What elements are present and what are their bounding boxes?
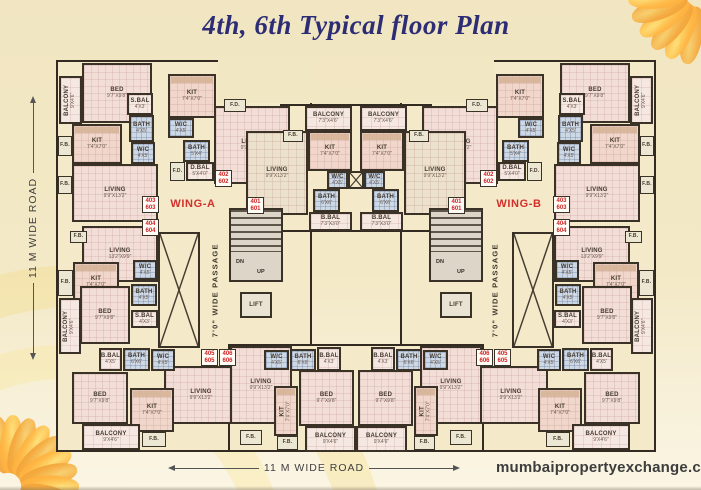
dry-balcony: D.BAL5'X4'0" — [186, 162, 214, 181]
passage-label: 7'0" WIDE PASSAGE — [203, 232, 229, 348]
living-room: LIVING9'9"X13'2" — [474, 366, 548, 424]
bath-room: BATH6'X6' — [290, 349, 316, 371]
wc: W/C4'X5' — [557, 142, 581, 164]
service-balcony: S.BAL4'X3' — [131, 310, 158, 328]
bed-room: BED9'7"X9'8" — [584, 372, 640, 424]
wc: W/C4'X5' — [151, 349, 175, 371]
bath-room: BATH4'X5' — [555, 284, 581, 306]
service-balcony: S.BAL4'X3' — [127, 93, 153, 115]
kitchen: KIT7'4"X7'0" — [360, 131, 404, 171]
kitchen: KIT7'4"X7'0" — [168, 74, 216, 118]
living-room: LIVING9'9"X13'2" — [164, 366, 238, 424]
staircase: DNUP — [229, 208, 283, 282]
flower-bed: F.B. — [283, 130, 303, 142]
back-balcony: B.BAL7'3"X3'0" — [309, 212, 352, 231]
bed-room: BED9'7"X9'8" — [72, 372, 128, 424]
flower-bed: F.B. — [414, 436, 435, 450]
wc: W/C4'X5' — [131, 142, 155, 164]
bed-room: BED9'7"X9'8" — [80, 286, 130, 344]
wc: W/C4'X5' — [364, 171, 385, 189]
page-title: 4th, 6th Typical floor Plan — [202, 10, 509, 41]
floor-plan: BED9'7"X9'8"BED9'7"X9'8"BALCONY9'X4'6"BA… — [0, 0, 701, 490]
service-balcony: S.BAL4'X3' — [559, 93, 585, 115]
road-left-text: 11 M WIDE ROAD — [27, 173, 39, 283]
bath-room: BATH4'X5' — [129, 115, 154, 142]
scan-edge-shadow — [0, 486, 701, 490]
bath-room: BATH4'X5' — [131, 284, 157, 306]
unit-plate: 404604 — [553, 219, 570, 236]
wing-label: WING-A — [160, 197, 226, 212]
bath-room: BATH6'X6' — [123, 348, 150, 371]
back-balcony: B.BAL4'X3' — [317, 347, 341, 371]
service-balcony: S.BAL4'X3' — [554, 310, 581, 328]
scanned-floor-plan: { "title": "4th, 6th Typical floor Plan"… — [0, 0, 701, 490]
wing-label: WING-B — [486, 197, 552, 212]
kitchen: KIT7'4"X7'0" — [414, 386, 438, 436]
arrow-left-icon — [168, 465, 175, 471]
flower-bed: F.B. — [58, 270, 73, 296]
unit-plate: 406606 — [219, 349, 236, 366]
balcony: BALCONY9'X4'6" — [82, 424, 140, 450]
unit-plate: 405605 — [494, 349, 511, 366]
flower-bed: F.B. — [546, 432, 570, 447]
flower-bed: F.D. — [170, 162, 185, 181]
kitchen: KIT7'4"X7'0" — [590, 124, 640, 164]
balcony: BALCONY9'X4'6" — [59, 298, 81, 354]
passage-label: 7'0" WIDE PASSAGE — [483, 232, 509, 348]
flower-bed: F.D. — [527, 162, 542, 181]
kitchen: KIT7'4"X7'0" — [72, 124, 122, 164]
arrow-right-icon — [30, 96, 36, 103]
rooms-layer: BED9'7"X9'8"BED9'7"X9'8"BALCONY9'X4'6"BA… — [0, 0, 701, 490]
balcony: BALCONY9'X4'6" — [572, 424, 630, 450]
unit-plate: 402602 — [480, 170, 497, 187]
balcony: BALCONY9'X4'6" — [59, 76, 82, 124]
balcony: BALCONY9'X4'6" — [356, 426, 407, 452]
flower-bed: F.B. — [240, 430, 262, 445]
road-bottom-text: 11 M WIDE ROAD — [259, 462, 369, 474]
road-label-left: 11 M WIDE ROAD — [26, 96, 40, 360]
kitchen: KIT7'4"X7'0" — [274, 386, 298, 436]
kitchen: KIT7'4"X7'0" — [496, 74, 544, 118]
wc: W/C4'X5' — [537, 349, 561, 371]
back-balcony: B.BAL4'X5' — [99, 348, 122, 371]
balcony: BALCONY9'X4'6" — [631, 298, 653, 354]
watermark: mumbaipropertyexchange.com — [496, 459, 701, 476]
wc: W/C4'X5' — [423, 350, 448, 370]
unit-plate: 402602 — [215, 170, 232, 187]
open-shaft — [512, 232, 554, 348]
unit-plate: 401601 — [247, 197, 264, 214]
flower-bed: F.D. — [224, 99, 246, 112]
arrow-left-icon — [30, 353, 36, 360]
bath-room: BATH6'X6' — [396, 349, 422, 371]
dry-balcony: D.BAL5'X4'0" — [498, 162, 526, 181]
wc: W/C4'X5' — [327, 171, 348, 189]
flower-bed: F.B. — [70, 231, 87, 243]
arrow-right-icon — [453, 465, 460, 471]
bath-room: BATH5'X4' — [502, 140, 529, 162]
unit-plate: 403603 — [553, 196, 570, 213]
balcony: BALCONY7'3"X4'6" — [305, 106, 352, 131]
flower-bed: F.B. — [639, 270, 654, 296]
flower-bed: F.B. — [409, 130, 429, 142]
duct-shaft — [348, 171, 364, 189]
wc: W/C4'X5' — [555, 260, 579, 280]
bath-room: BATH4'X5' — [558, 115, 583, 142]
living-room: LIVING9'9"X13'2" — [554, 164, 640, 222]
flower-bed: F.B. — [58, 136, 72, 156]
flower-bed: F.B. — [277, 436, 298, 450]
bath-room: BATH6'X6' — [372, 189, 399, 212]
kitchen: KIT7'4"X7'0" — [308, 131, 352, 171]
flower-bed: F.B. — [58, 176, 72, 194]
road-label-bottom: 11 M WIDE ROAD — [168, 461, 460, 475]
bath-room: BATH6'X6' — [313, 189, 340, 212]
flower-bed: F.B. — [640, 176, 654, 194]
back-balcony: B.BAL4'X3' — [371, 347, 395, 371]
wc: W/C4'X5' — [518, 118, 544, 138]
flower-bed: F.B. — [625, 231, 642, 243]
unit-plate: 404604 — [142, 219, 159, 236]
balcony: BALCONY9'X4'6" — [305, 426, 356, 452]
bath-room: BATH5'X4' — [183, 140, 210, 162]
flower-bed: F.B. — [142, 432, 166, 447]
flower-bed: F.D. — [466, 99, 488, 112]
unit-plate: 403603 — [142, 196, 159, 213]
unit-plate: 406606 — [476, 349, 493, 366]
staircase: DNUP — [429, 208, 483, 282]
back-balcony: B.BAL4'X5' — [590, 348, 613, 371]
bed-room: BED9'7"X9'8" — [358, 370, 413, 426]
wc: W/C4'X5' — [168, 118, 194, 138]
bed-room: BED9'7"X9'8" — [582, 286, 632, 344]
bed-room: BED9'7"X9'8" — [299, 370, 354, 426]
bath-room: BATH6'X6' — [562, 348, 589, 371]
lift: LIFT — [440, 292, 472, 318]
lift: LIFT — [240, 292, 272, 318]
balcony: BALCONY7'3"X4'6" — [360, 106, 407, 131]
flower-bed: F.B. — [450, 430, 472, 445]
unit-plate: 405605 — [201, 349, 218, 366]
wc: W/C4'X5' — [133, 260, 157, 280]
wc: W/C4'X5' — [264, 350, 289, 370]
living-room: LIVING9'9"X13'2" — [72, 164, 158, 222]
back-balcony: B.BAL7'3"X3'0" — [360, 212, 403, 231]
flower-bed: F.B. — [640, 136, 654, 156]
balcony: BALCONY9'X4'6" — [630, 76, 653, 124]
unit-plate: 401601 — [448, 197, 465, 214]
open-shaft — [158, 232, 200, 348]
